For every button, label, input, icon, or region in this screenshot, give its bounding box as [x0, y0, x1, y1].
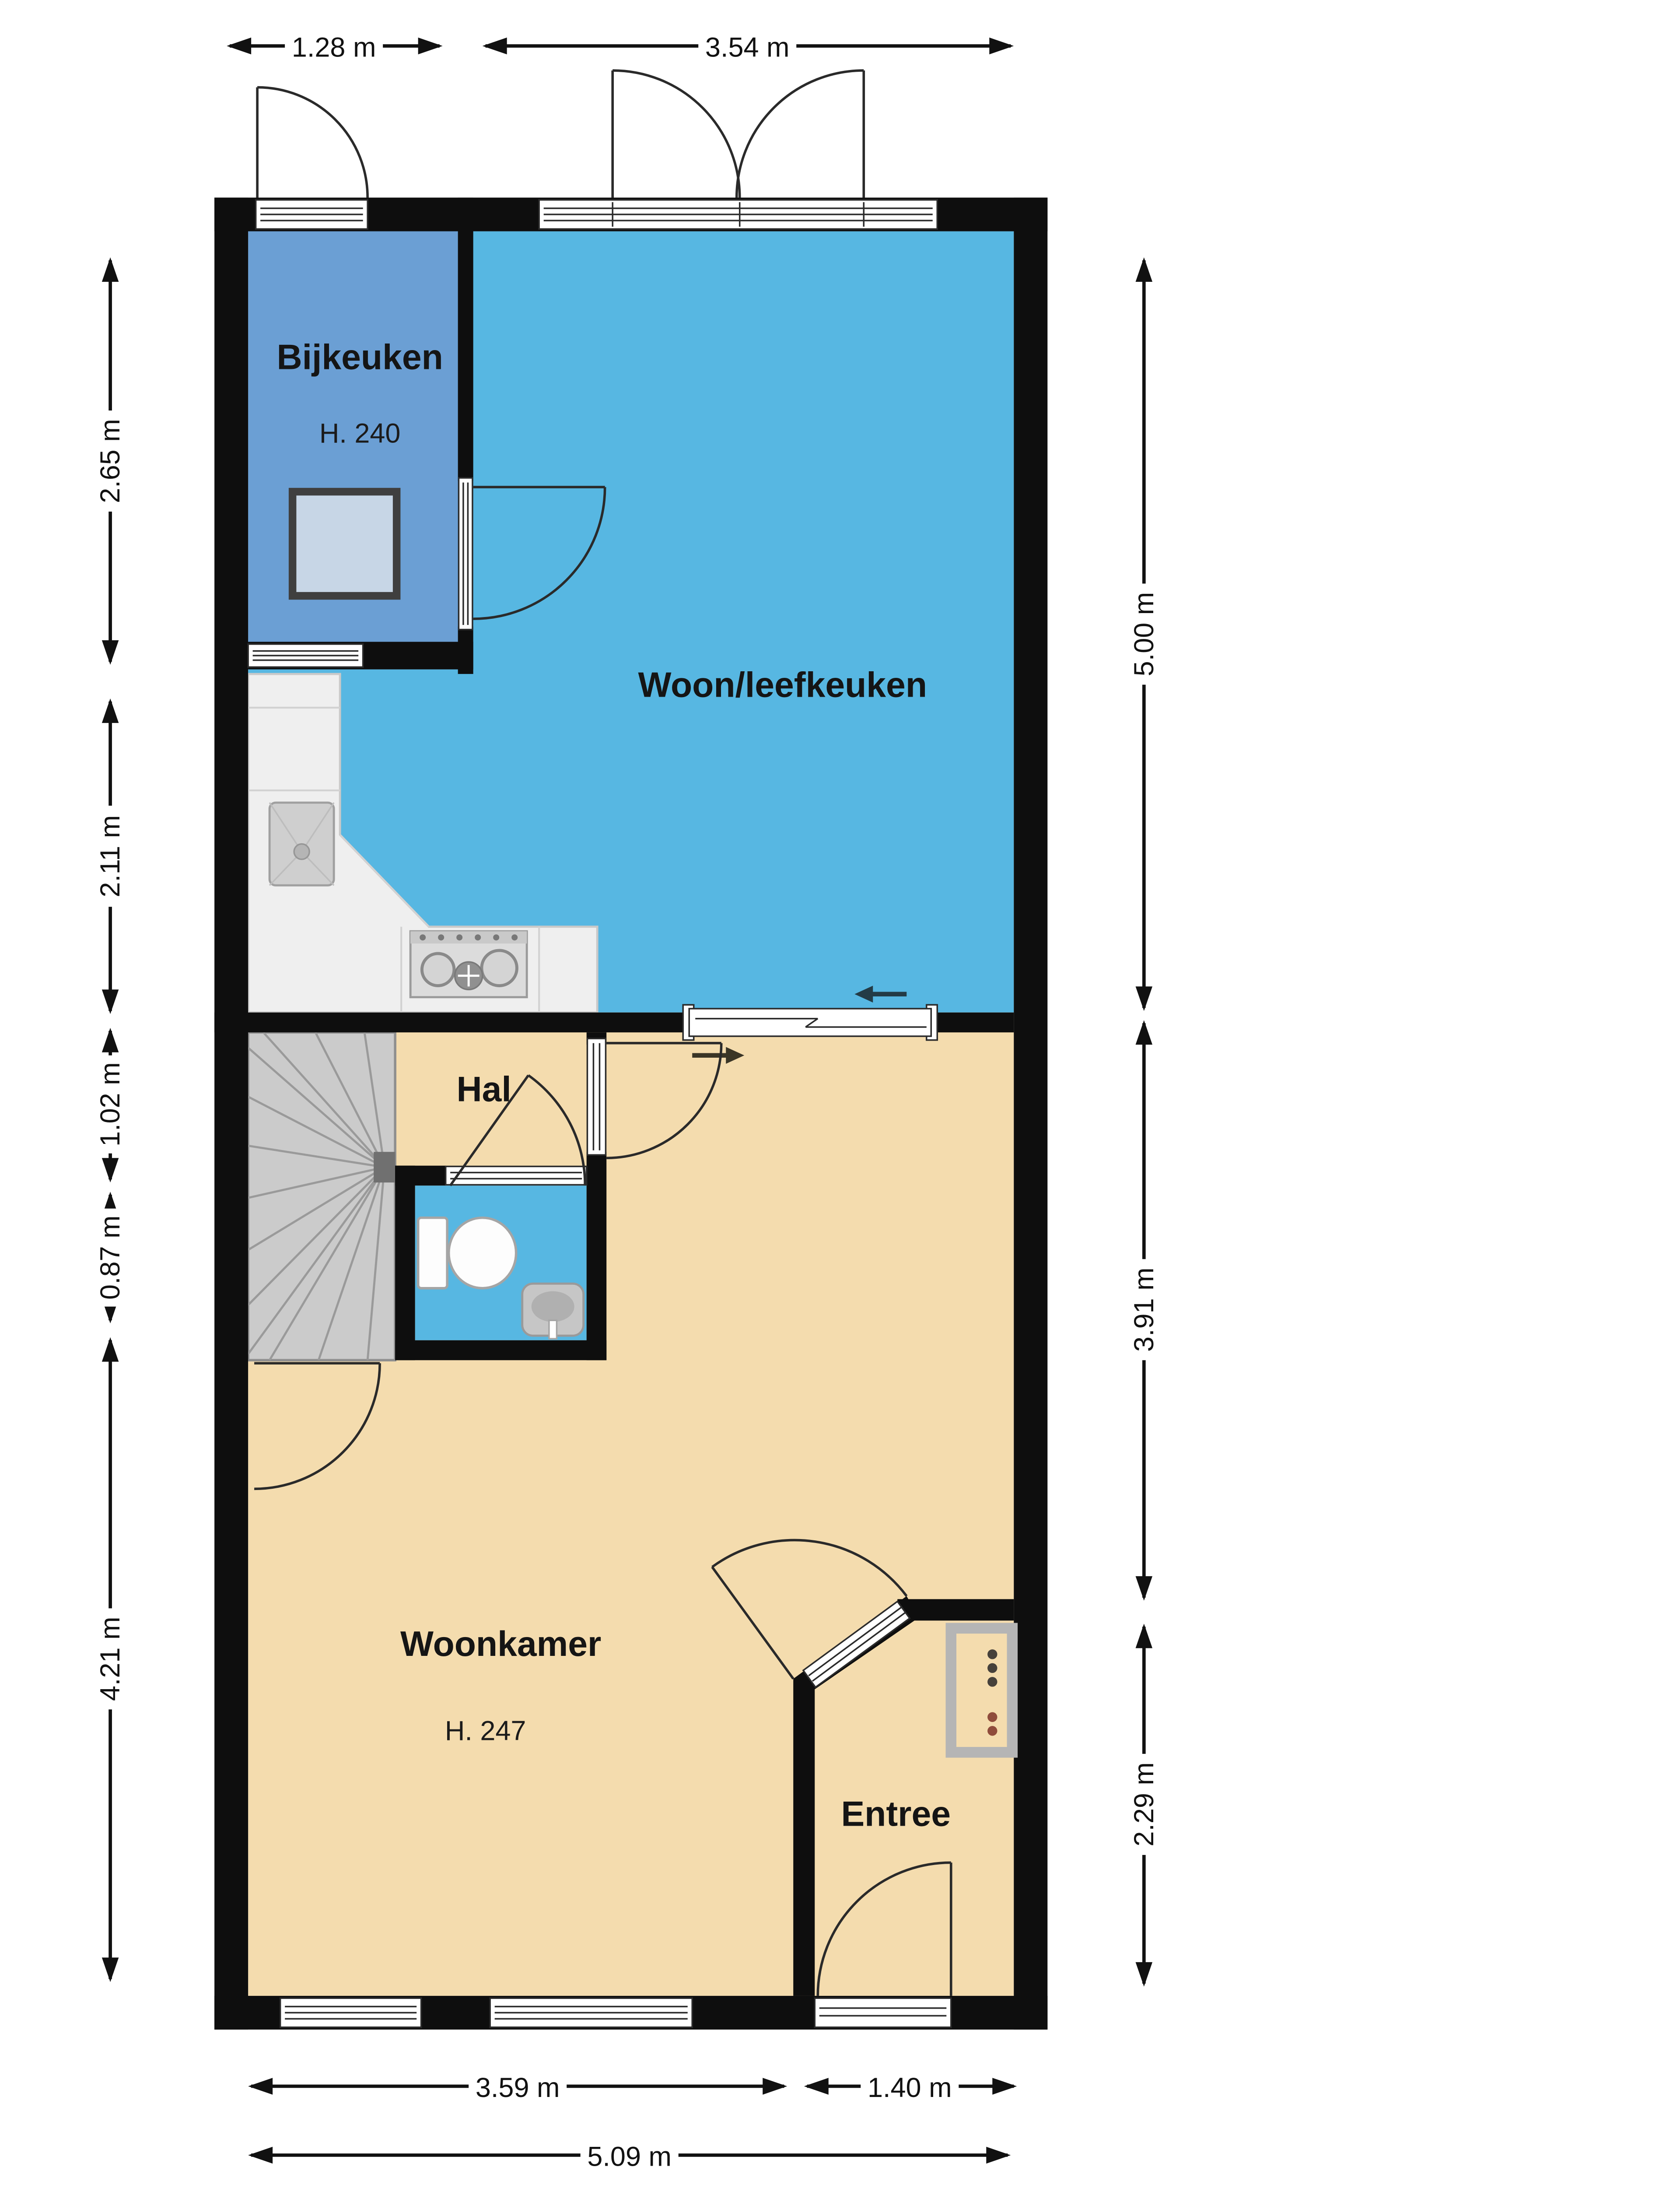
dim-top-1: 1.28 m	[227, 26, 443, 66]
svg-text:0.87 m: 0.87 m	[95, 1215, 126, 1300]
label-woonkamer-height: H. 247	[445, 1715, 526, 1746]
wall-utility-right-upper	[458, 198, 473, 481]
dim-right-2: 3.91 m	[1124, 1020, 1164, 1601]
staircase	[248, 1032, 395, 1360]
dim-right-1: 5.00 m	[1124, 257, 1164, 1011]
svg-text:5.09 m: 5.09 m	[587, 2141, 672, 2172]
sliding-door	[683, 1005, 937, 1040]
toilet-fixture	[418, 1218, 516, 1288]
svg-text:2.65 m: 2.65 m	[95, 419, 126, 503]
wall-toilet-top	[395, 1166, 446, 1186]
meter-dot-5	[987, 1726, 997, 1736]
floorplan-page: Bijkeuken H. 240 Woon/leefkeuken Hal Woo…	[0, 0, 1680, 2188]
svg-text:4.21 m: 4.21 m	[95, 1617, 126, 1701]
svg-text:1.40 m: 1.40 m	[868, 2072, 952, 2103]
washing-machine	[293, 492, 397, 596]
svg-text:1.28 m: 1.28 m	[292, 32, 376, 63]
living-window-left	[280, 1998, 421, 2027]
dim-left-3: 1.02 m	[91, 1028, 130, 1183]
floorplan-drawing: Bijkeuken H. 240 Woon/leefkeuken Hal Woo…	[0, 0, 1680, 2188]
label-woonleefkeuken: Woon/leefkeuken	[638, 666, 927, 705]
dim-left-2: 2.11 m	[91, 698, 130, 1014]
wall-left	[214, 198, 248, 2030]
dim-right-3: 2.29 m	[1124, 1623, 1164, 1987]
label-bijkeuken: Bijkeuken	[277, 338, 443, 377]
label-entree: Entree	[841, 1794, 951, 1834]
wall-hal-living	[587, 1152, 607, 1360]
kitchen-sink	[269, 803, 334, 885]
kitchen-stove	[410, 931, 527, 997]
wall-right	[1014, 198, 1047, 2030]
dim-left-4: 0.87 m	[91, 1192, 130, 1323]
dim-bottom-2: 1.40 m	[804, 2066, 1017, 2106]
living-window-center	[490, 1998, 692, 2027]
svg-text:3.54 m: 3.54 m	[705, 32, 790, 63]
svg-text:2.29 m: 2.29 m	[1129, 1762, 1159, 1847]
svg-text:5.00 m: 5.00 m	[1129, 592, 1159, 677]
utility-room-floor	[248, 231, 458, 670]
dim-bottom-1: 3.59 m	[248, 2066, 787, 2106]
svg-text:3.59 m: 3.59 m	[476, 2072, 560, 2103]
dim-bottom-3: 5.09 m	[248, 2135, 1011, 2175]
kitchen-french-doors	[539, 70, 937, 229]
toilet-sink	[522, 1283, 584, 1339]
svg-text:3.91 m: 3.91 m	[1129, 1267, 1159, 1352]
label-bijkeuken-height: H. 240	[319, 418, 401, 449]
svg-text:2.11 m: 2.11 m	[95, 815, 126, 898]
label-woonkamer: Woonkamer	[400, 1624, 601, 1664]
wall-toilet-bottom	[395, 1340, 606, 1360]
utility-back-door	[256, 88, 368, 229]
stair-newel-post	[374, 1152, 395, 1182]
meter-dot-1	[987, 1649, 997, 1659]
dim-left-5: 4.21 m	[91, 1337, 130, 1982]
wall-entree-left	[793, 1679, 815, 1996]
meter-dot-2	[987, 1663, 997, 1673]
meter-dot-4	[987, 1712, 997, 1722]
wall-toilet-left	[395, 1166, 415, 1360]
dim-top-2: 3.54 m	[483, 26, 1014, 66]
svg-text:1.02 m: 1.02 m	[95, 1062, 126, 1147]
label-hal: Hal	[457, 1070, 511, 1109]
utility-window	[248, 644, 363, 667]
dim-left-1: 2.65 m	[91, 257, 130, 665]
meter-dot-3	[987, 1677, 997, 1687]
